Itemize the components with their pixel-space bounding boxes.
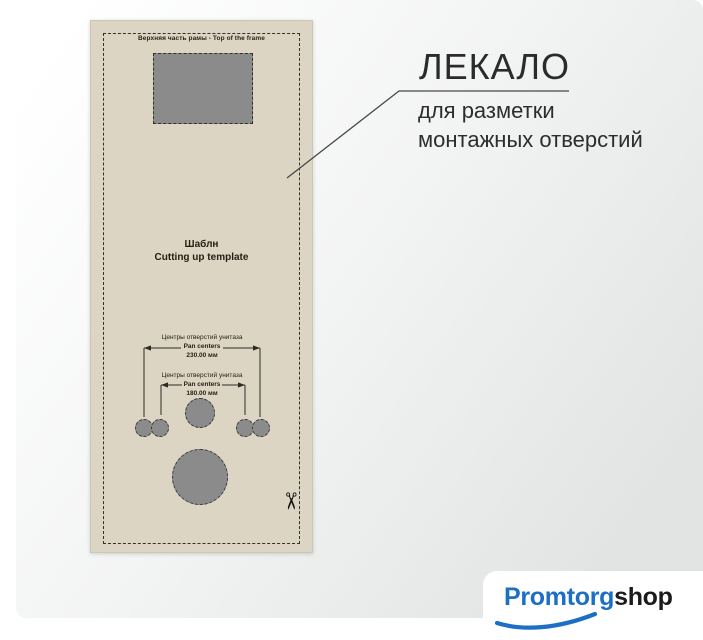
frame-window-cutout — [153, 53, 253, 124]
dimension-value: 180.00 мм — [112, 389, 292, 398]
dimension-label-en: Pan centers — [112, 380, 292, 389]
dimension-label-ru: Центры отверстий унитаза — [112, 371, 292, 380]
flush-pipe-hole-circle — [185, 398, 215, 428]
drain-pipe-hole-circle — [172, 449, 228, 505]
dimension-block-180: Центры отверстий унитаза Pan centers 180… — [112, 371, 292, 398]
template-title-en: Cutting up template — [91, 252, 312, 263]
logo-swoosh-icon — [483, 571, 703, 640]
pan-fixing-hole-circle — [252, 419, 270, 437]
dimension-label-ru: Центры отверстий унитаза — [112, 333, 292, 342]
dimension-label-en: Pan centers — [112, 342, 292, 351]
template-title-ru: Шаблн — [91, 239, 312, 250]
scissors-icon: ✂ — [277, 488, 303, 514]
logo-card: Promtorgshop — [483, 571, 703, 640]
pan-fixing-hole-circle — [151, 419, 169, 437]
callout-line2: монтажных отверстий — [418, 125, 643, 154]
frame-top-label: Верхняя часть рамы - Top of the frame — [91, 35, 312, 42]
callout-subtitle: для разметки монтажных отверстий — [418, 96, 643, 154]
dimension-value: 230.00 мм — [112, 351, 292, 360]
callout-line1: для разметки — [418, 96, 643, 125]
callout-title: ЛЕКАЛО — [419, 46, 570, 88]
dimension-block-230: Центры отверстий унитаза Pan centers 230… — [112, 333, 292, 360]
product-image-canvas: Верхняя часть рамы - Top of the frame Ша… — [0, 0, 703, 640]
